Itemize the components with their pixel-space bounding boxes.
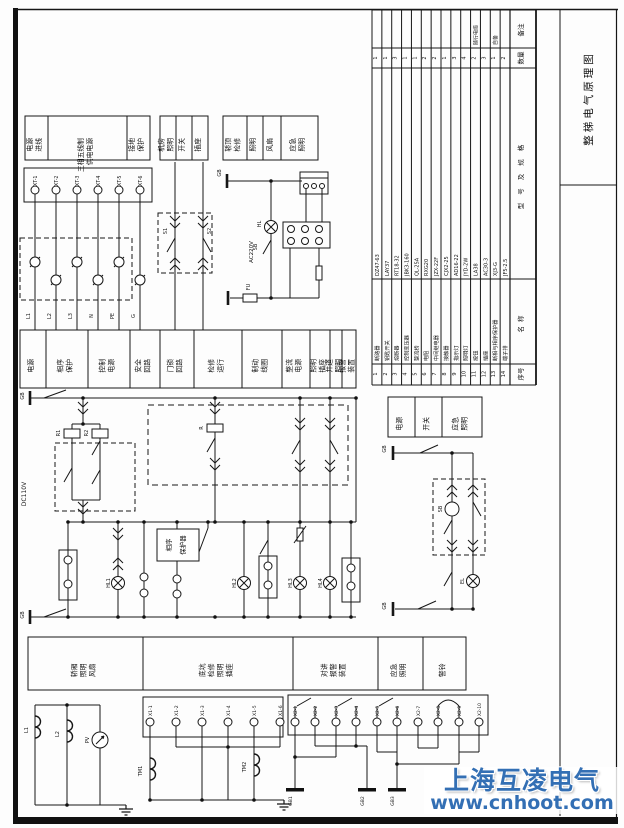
junction-dot [116,615,120,619]
bom-qty: 1 [442,56,448,59]
bom-spec: RXG20 [424,259,430,276]
ref-label: SB [253,243,259,250]
ref-label: X2-5 [375,706,381,716]
coil-icon [150,758,156,780]
bom-qty: 2 [501,56,507,59]
ref-label: 相序 [164,538,173,552]
bom-qty: 2 [422,56,428,59]
junction-dot [66,615,70,619]
bom-row-header: 名称 [516,312,525,333]
dashed-box [433,479,485,555]
junction-dot [116,520,120,524]
band-cell-label: 保护 [136,138,145,152]
junction-dot [81,520,85,524]
resistor-icon [64,429,80,438]
ref-label: G [131,314,137,318]
band-cell-label: 制动 [251,359,260,373]
coil-icon [35,716,41,738]
terminal-icon [31,186,39,194]
band-cell-label: 进线 [34,138,43,152]
bom-qty: 1 [373,56,379,59]
band-cell-label: 风扇 [88,663,97,677]
terminal-icon [172,718,180,726]
band-cell-label: 报警 [338,359,347,373]
contact-icon [135,275,145,285]
ref-label: PV [85,736,91,743]
bom-name: 钥匙开关 [383,340,391,361]
bom-seq: 5 [412,372,418,375]
band-cell-label: 运行 [216,359,225,373]
ref-label: XT-3 [75,176,81,186]
ref-label: X1-6 [278,705,284,716]
terminal-icon [302,238,309,245]
ref-label: HL2 [232,578,238,588]
band-cell-label: 报警 [329,663,338,677]
resistor-icon [92,429,108,438]
band-cell-label: 电源 [294,359,303,373]
bom-spec: AC30-3 [483,258,489,276]
terminal-icon [373,718,381,726]
bom-row-header: 序号 [516,367,525,381]
band-cell-label: 应急 [451,417,460,431]
band-box [223,116,318,160]
ref-label: L2 [47,313,53,319]
ref-label: GB [20,392,26,400]
junction-dot [349,615,353,619]
bom-spec: LA38 [474,263,480,276]
band-cell-label: 装置 [338,663,347,677]
band-cell-label: 三相五线制 [76,138,85,172]
bom-row-header: 备注 [516,23,525,37]
band-cell-label: 照明 [249,138,257,152]
bom-name: 电阻 [422,351,430,361]
bom-spec: CJX2-25 [444,256,450,276]
band-cell-label: 电源 [26,359,35,373]
bom-seq: 13 [491,371,497,377]
junction-dot [242,520,246,524]
terminal-icon [140,589,148,597]
band-cell-label: 相序 [56,359,65,373]
junction-dot [328,520,332,524]
contact-icon [93,275,103,285]
ref-label: XT-2 [54,176,60,186]
terminal-strip [24,168,152,202]
bom-remark: 随行电缆 [473,25,480,45]
ref-label: EL [460,578,466,584]
terminal-icon [146,718,154,726]
bom-seq: 14 [501,371,507,377]
contact-icon [51,275,61,285]
junction-dot [450,607,454,611]
bom-spec: AD16-22 [454,254,460,276]
junction-dot [328,615,332,619]
terminal-icon [198,718,206,726]
band-cell-label: 开关 [422,417,431,431]
ref-label: GB3 [390,796,396,806]
band-cell-label: 照明 [310,359,318,373]
band-cell-label: 警铃 [438,663,447,677]
band-cell-label: 控制 [98,359,107,373]
bom-qty: 2 [472,56,478,59]
bom-name: 指示灯 [452,345,460,361]
bom-seq: 9 [452,372,458,375]
junction-dot [213,615,217,619]
ref-label: X2-3 [334,706,340,716]
ref-label: X1-4 [226,705,232,716]
terminal-icon [312,184,317,189]
junction-dot [142,520,146,524]
bom-spec: RT18-32 [395,255,401,276]
bom-seq: 1 [373,372,379,375]
junction-dot [213,396,217,400]
ref-label: X2-2 [313,706,319,716]
ref-label: DC110V [21,481,28,506]
ref-label: X2-8 [436,706,442,716]
ref-label: S2 [207,228,213,234]
ref-label: R [199,426,205,430]
terminal-icon [264,581,272,589]
band-cell-label: 风扇 [265,138,274,152]
band-cell-label: 整流 [285,359,294,373]
band-cell-label: 检修 [233,138,242,152]
band-cell-label: 轿厢 [70,663,79,677]
bom-qty: 2 [432,56,438,59]
bom-row-header: 型号及规格 [516,137,525,210]
ref-label: GB [382,445,388,453]
terminal-icon [347,564,355,572]
band-cell-label: 检修 [207,359,216,373]
dashed-box [20,238,132,300]
band-cell-label: 应急 [389,663,398,677]
band-cell-label: 插座 [193,138,202,152]
contact-icon [30,257,40,267]
ref-label: X1-3 [200,705,206,716]
band-cell-label: 电源 [395,417,404,431]
terminal-icon [434,718,442,726]
ref-label: L1 [24,727,30,733]
band-cell-label: 对讲 [320,663,329,677]
junction-dot [66,520,70,524]
terminal-icon [224,718,232,726]
terminal-icon [288,238,295,245]
band-cell-label: 机房 [157,138,166,152]
coil-icon [254,754,260,776]
terminal-strip [143,697,283,737]
band-cell-label: 底坑 [198,663,207,677]
junction-dot [395,762,399,766]
ref-label: X1-2 [174,705,180,716]
ref-label: 保护器 [178,535,187,555]
band-cell-label: 保护 [65,359,74,373]
bom-seq: 3 [393,372,399,375]
terminal-icon [136,186,144,194]
ref-label: X2-4 [354,706,360,716]
band-box [160,116,208,160]
junction-dot [293,755,297,759]
ref-label: GB1 [288,796,294,806]
junction-dot [450,451,454,455]
dashed-box [158,213,212,273]
drawing-title: 整梯电气原理图 [581,51,596,146]
band-cell-label: 门锁 [166,359,175,373]
bom-spec: JBK3-160 [405,253,411,277]
junction-dot [298,396,302,400]
schematic-page: 电源进线三相五线制供电电源接地保护机房照明开关插座轿顶检修照明风扇应急照明电源相… [0,0,624,828]
ref-label: X2-10 [477,703,483,716]
bom-spec: XJ3-G [493,262,499,276]
band-cell-label: 照明 [80,663,88,677]
ref-label: HL3 [288,578,294,588]
band-cell-label: 轿顶 [224,138,233,152]
junction-dot [142,615,146,619]
junction-dot [354,396,358,400]
contact-icon [114,257,124,267]
terminal-icon [173,575,181,583]
bom-name: 插座 [481,351,489,361]
junction-dot [65,703,69,707]
bom-spec: JF5-2.5 [503,259,509,277]
bom-name: 控制变压器 [403,334,411,361]
contact-icon [72,257,82,267]
junction-dot [298,520,302,524]
band-cell-label: 安全 [134,359,143,373]
terminal-icon [393,718,401,726]
junction-dot [266,520,270,524]
bom-name: 断路器 [373,345,381,361]
bom-qty: 4 [462,56,468,59]
junction-dot [213,520,217,524]
band-cell-label: 装置 [347,359,356,373]
terminal-icon [347,582,355,590]
junction-dot [266,615,270,619]
bom-seq: 12 [481,371,487,377]
terminal-icon [291,718,299,726]
band-cell-label: 检修 [207,663,216,677]
bom-qty: 3 [481,56,487,59]
bom-name: 端子排 [501,345,509,361]
bom-spec: JZX-22F [434,257,440,277]
ref-label: X1-1 [148,705,154,716]
terminal-icon [115,186,123,194]
bom-spec: QL-25A [414,257,420,276]
band-cell-label: 照明 [298,138,306,152]
terminal-icon [52,186,60,194]
bom-spec: JYD-2W [464,258,470,277]
terminal-icon [173,590,181,598]
terminal-icon [73,186,81,194]
junction-dot [354,744,358,748]
terminal-icon [316,238,323,245]
terminal-icon [455,718,463,726]
band-cell-label: 照明 [461,417,469,431]
ref-label: SB [438,505,444,512]
terminal-icon [302,226,309,233]
ref-label: PE [110,313,116,319]
bom-seq: 11 [472,371,478,377]
ref-label: XT-5 [117,176,123,186]
resistor-icon [243,294,257,302]
ref-label: L3 [68,313,74,319]
junction-dot [471,607,475,611]
terminal-icon [475,718,483,726]
junction-dot [206,520,210,524]
band-cell-label: 照明 [217,663,225,677]
terminal-icon [64,580,72,588]
ref-label: R2 [84,430,90,437]
junction-dot [269,296,273,300]
junction-dot [252,798,256,802]
ground-icon [119,805,133,815]
terminal-icon [352,718,360,726]
bom-qty: 1 [383,56,389,59]
bom-row-header: 数量 [516,51,525,65]
ref-label: TM1 [138,766,144,778]
button-icon [445,502,459,516]
terminal-icon [250,718,258,726]
junction-dot [81,396,85,400]
ref-label: FU [246,283,252,290]
junction-dot [65,803,69,807]
junction-dot [298,615,302,619]
terminal-icon [264,562,272,570]
watermark-company: 上海互凌电气 [424,768,620,794]
band-cell-label: 供电电源 [85,138,94,165]
terminal-icon [288,226,295,233]
junction-dot [175,615,179,619]
band-cell-label: 线圈 [260,359,269,373]
watermark-url: www.cnhoot.com [424,794,620,814]
ref-label: HL1 [106,578,112,588]
bom-remark: 自备 [492,35,499,45]
frame-bottom [13,817,618,824]
terminal-icon [320,184,325,189]
junction-dot [226,745,230,749]
bom-name: 断相与相序保护器 [491,319,499,361]
band-cell-label: 电源 [107,359,116,373]
ref-label: X2-1 [293,706,299,716]
bom-qty: 3 [393,56,399,59]
battery-bar-icon [358,788,376,792]
bom-qty: 1 [403,56,409,59]
bom-spec: DZ47-63 [375,254,381,276]
dashed-box [148,405,348,485]
ref-label: X1-5 [252,705,258,716]
band-cell-label: 照明 [167,138,175,152]
ref-label: L1 [26,313,32,319]
coil-icon [67,720,73,742]
band-box [28,637,466,690]
terminal-icon [332,718,340,726]
ref-label: X2-7 [416,706,422,716]
battery-bar-icon [286,788,304,792]
bom-name: 接触器 [442,345,450,361]
junction-dot [242,615,246,619]
ref-label: TM2 [242,762,248,774]
band-cell-label: 井道 [325,359,334,373]
junction-dot [81,422,85,426]
bom-name: 照明灯 [462,345,470,361]
schematic-canvas: 电源进线三相五线制供电电源接地保护机房照明开关插座轿顶检修照明风扇应急照明电源相… [0,0,624,828]
ref-label: GB [382,602,388,610]
terminal-icon [311,718,319,726]
frame-left [13,8,18,824]
bom-name: 中间继电器 [432,334,440,361]
bom-name: 整流桥 [412,345,420,361]
terminal-icon [414,718,422,726]
bom-spec: LAY37 [385,261,391,276]
resistor-icon [207,424,223,432]
bom-qty: 1 [412,56,418,59]
band-cell-label: 接地 [127,138,136,152]
terminal-icon [316,226,323,233]
terminal-icon [276,718,284,726]
band-box [20,330,356,388]
junction-dot [269,179,273,183]
ref-label: R1 [56,430,62,437]
ref-label: X2-6 [395,706,401,716]
band-cell-label: 回路 [175,359,184,373]
ref-label: GB [20,611,26,619]
ref-label: XT-6 [138,176,144,186]
bom-seq: 4 [403,372,409,375]
junction-dot [328,396,332,400]
resistor-icon [316,266,322,280]
bom-seq: 6 [422,372,428,375]
junction-dot [148,798,152,802]
bom-seq: 7 [432,372,438,375]
ref-label: S1 [163,228,169,234]
bom-seq: 8 [442,372,448,375]
bom-seq: 10 [462,371,468,377]
relay-box [157,529,199,561]
band-cell-label: 插座 [225,663,234,677]
terminal-icon [64,556,72,564]
ref-label: XT-4 [96,176,102,186]
bom-name: 按钮 [472,351,480,361]
band-cell-label: 照明 [399,663,407,677]
bom-qty: 1 [491,56,497,59]
terminal-icon [140,573,148,581]
battery-bar-icon [388,788,406,792]
ref-label: XT-1 [33,176,39,186]
terminal-icon [304,184,309,189]
bom-qty: 3 [452,56,458,59]
junction-dot [175,520,179,524]
ref-label: L2 [55,731,61,737]
bom-seq: 2 [383,372,389,375]
ref-label: HL [257,221,263,228]
terminal-icon [94,186,102,194]
band-cell-label: 应急 [288,138,297,152]
ref-label: N [89,314,95,318]
band-cell-label: 开关 [177,138,186,152]
band-cell-label: 电源 [25,138,34,152]
ref-label: GB [217,169,223,177]
ref-label: GB2 [360,796,366,806]
junction-dot [200,798,204,802]
ref-label: X2-9 [457,706,463,716]
band-cell-label: 回路 [143,359,152,373]
title-block: 整梯电气原理图 [559,10,617,186]
bom-name: 熔断器 [393,345,401,361]
watermark: 上海互凌电气 www.cnhoot.com [424,767,620,814]
ref-label: HL4 [318,578,324,588]
junction-dot [349,520,353,524]
